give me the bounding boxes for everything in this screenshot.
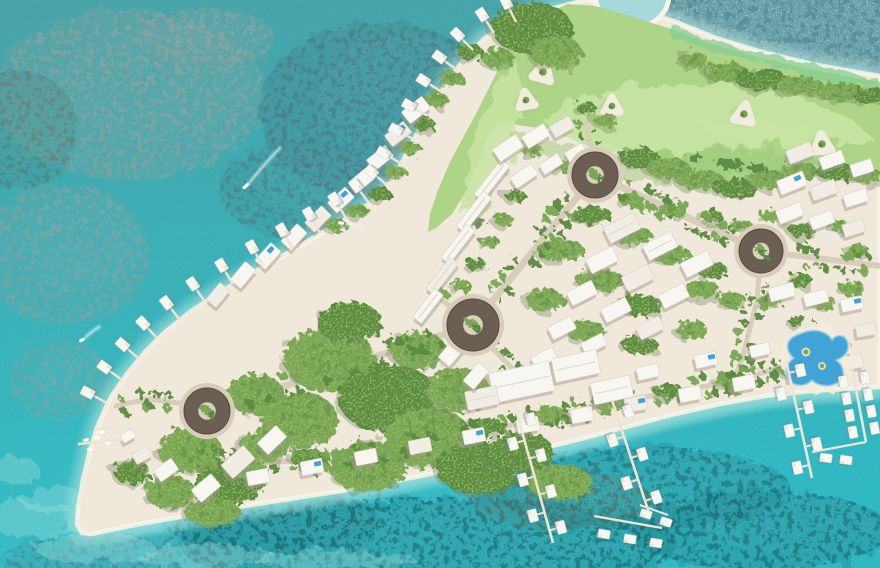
masterplan-svg: [0, 0, 880, 568]
masterplan-aerial-view: [0, 0, 880, 568]
